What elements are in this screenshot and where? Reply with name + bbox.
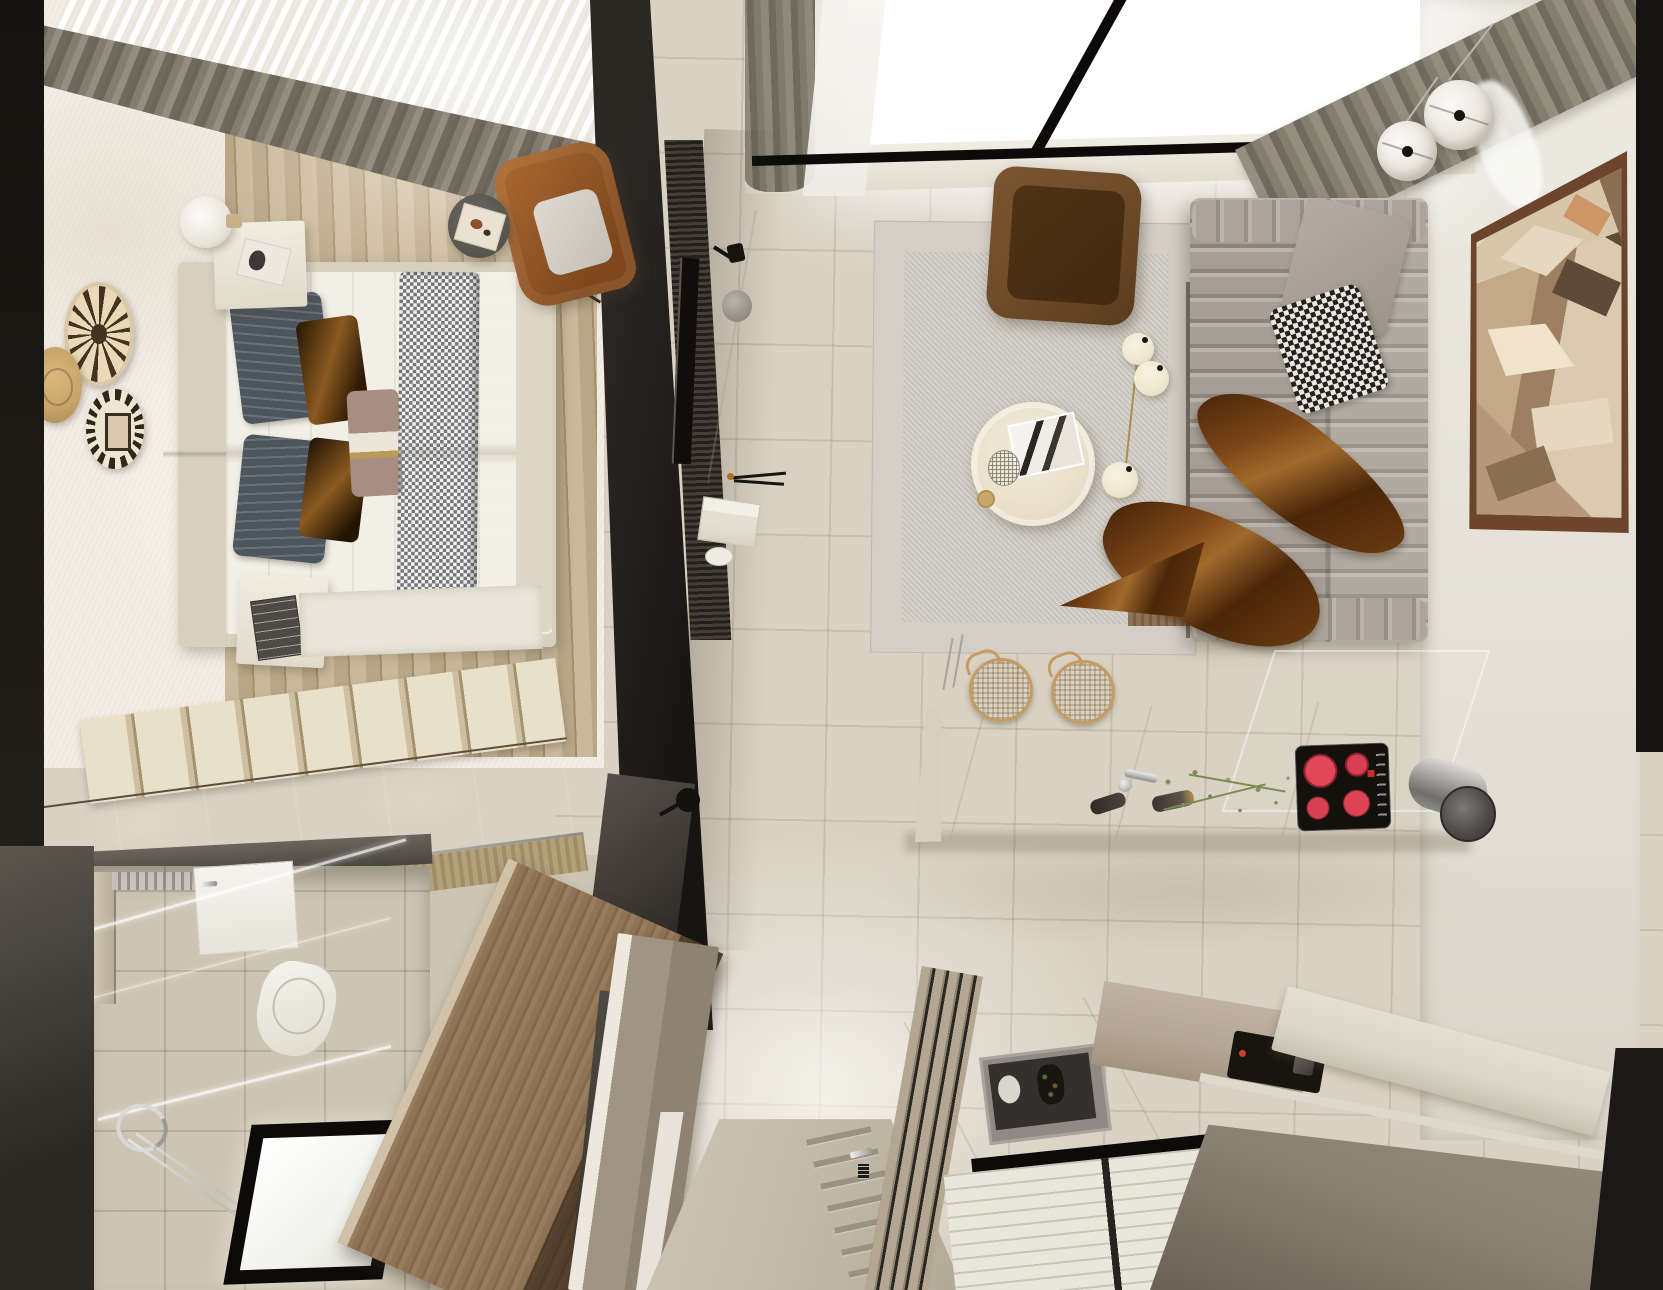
- glass-vase: [722, 290, 752, 322]
- small-bowl: [705, 547, 733, 566]
- extractor-hood-opening: [1440, 786, 1496, 842]
- gray-checkered-throw: [396, 272, 479, 641]
- left-wall-edge: [0, 0, 44, 868]
- kitchen-floor-shadow: [860, 846, 1500, 956]
- art-shape: [1564, 193, 1612, 236]
- bed-headboard: [163, 268, 227, 640]
- wall-sconce-icon: [726, 243, 745, 264]
- pendant-light: [1377, 121, 1437, 181]
- floor-lamp-globe: [1102, 462, 1138, 498]
- rattan-bar-stool: [1051, 660, 1115, 724]
- herb-sprigs: [1150, 744, 1300, 839]
- wire-sphere-decor: [988, 450, 1020, 486]
- round-table-lamp: [180, 196, 232, 248]
- art-shape: [1531, 397, 1613, 452]
- floor-lamp-globe: [1134, 361, 1169, 396]
- mauve-accent-pillow: [346, 389, 403, 498]
- door-lock: [858, 1164, 869, 1179]
- art-shape: [1486, 445, 1557, 501]
- apartment-top-down-render: [0, 0, 1663, 1290]
- bottom-left-wall-edge: [0, 846, 94, 1290]
- brown-leather-lounge-chair: [985, 165, 1143, 327]
- top-right-wall-edge: [1636, 0, 1663, 752]
- bed-frame-edge: [516, 276, 552, 632]
- stacked-books: [697, 496, 761, 548]
- faucet-base: [1118, 778, 1132, 792]
- art-shape: [1479, 312, 1582, 389]
- rattan-bar-stool: [969, 658, 1033, 722]
- small-cup: [977, 490, 995, 508]
- art-shape: [1552, 258, 1621, 316]
- console-lamp: [676, 788, 700, 812]
- console-object-knob: [727, 473, 734, 480]
- woven-wall-plate-zigzag: [86, 389, 144, 469]
- induction-cooktop: [1295, 742, 1392, 831]
- bathroom-shelf: [112, 872, 192, 890]
